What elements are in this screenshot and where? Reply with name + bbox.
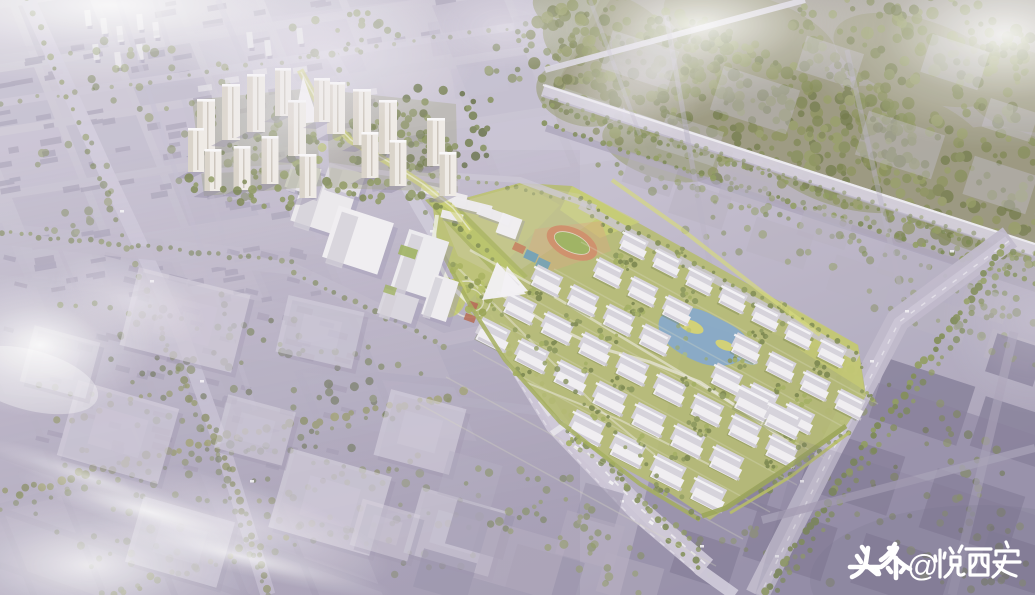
svg-text:@: @: [907, 548, 938, 583]
